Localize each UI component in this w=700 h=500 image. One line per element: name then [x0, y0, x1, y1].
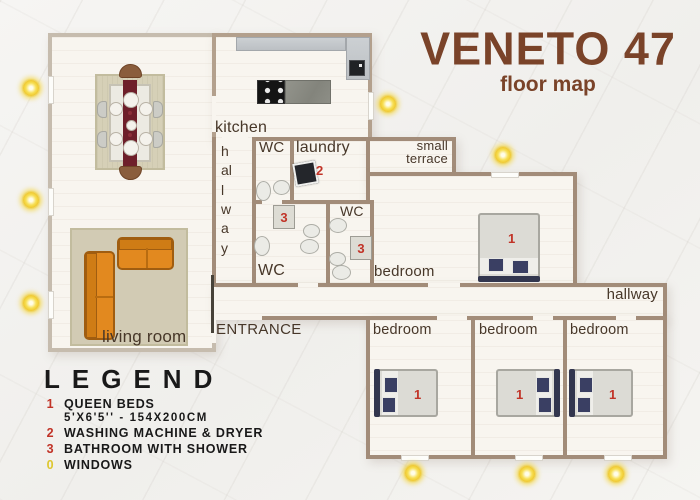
label-bedroom-2: bedroom	[479, 322, 538, 338]
chair-icon	[97, 131, 107, 148]
chair-icon	[153, 101, 163, 118]
shower-marker: 3	[273, 205, 295, 229]
bed-frame	[554, 369, 560, 417]
bed-frame	[374, 369, 380, 417]
legend-num-3: 3	[44, 442, 57, 456]
toilet-icon	[329, 252, 346, 266]
pillow-icon	[536, 377, 550, 393]
queen-bed-icon: 1	[569, 369, 633, 417]
label-terrace-line2: terrace	[378, 152, 448, 166]
window-slot-bedroom-3	[604, 455, 632, 461]
sofa-seam	[95, 296, 113, 298]
sofa-seam	[146, 248, 148, 268]
label-living-room: living room	[102, 327, 186, 347]
plate-icon	[139, 132, 153, 146]
page-subtitle: floor map	[400, 73, 696, 97]
window-slot-left-1	[48, 76, 54, 104]
legend-item-bathroom: 3 BATHROOM WITH SHOWER	[44, 442, 263, 456]
legend-label-0: WINDOWS	[64, 458, 133, 472]
window-slot-kitchen	[368, 92, 374, 120]
plate-icon	[109, 132, 123, 146]
label-entrance: ENTRANCE	[216, 321, 302, 338]
door-bathroom-left	[298, 283, 318, 287]
sink-icon	[273, 180, 290, 195]
legend-num-0: 0	[44, 458, 57, 472]
bed-marker: 1	[516, 387, 523, 402]
window-slot-left-2	[48, 188, 54, 216]
window-icon	[495, 147, 511, 163]
window-icon	[23, 80, 39, 96]
window-icon	[23, 295, 39, 311]
legend-item-windows: 0 WINDOWS	[44, 458, 263, 472]
door-bedroom-2	[533, 316, 553, 320]
window-icon	[23, 192, 39, 208]
pillow-icon	[512, 260, 529, 274]
plate-icon	[123, 140, 139, 156]
bed-marker: 1	[508, 231, 515, 246]
toilet-icon	[300, 239, 319, 254]
shower-marker: 3	[350, 236, 372, 260]
label-bedroom-1: bedroom	[373, 322, 432, 338]
title-block: VENETO 47 floor map	[400, 26, 696, 97]
label-hallway-vertical: hallway	[221, 142, 234, 258]
window-slot-left-3	[48, 291, 54, 319]
legend-label-1: QUEEN BEDS	[64, 397, 155, 411]
toilet-icon	[256, 181, 271, 201]
page-title: VENETO 47	[400, 25, 696, 72]
sofa-icon	[117, 237, 174, 270]
queen-bed-icon: 1	[374, 369, 438, 417]
door-kitchen-hallway	[222, 137, 248, 141]
runner-dot	[128, 111, 132, 115]
legend-num-1: 1	[44, 397, 57, 411]
kitchen-sink-icon	[349, 60, 365, 76]
legend-label-3: BATHROOM WITH SHOWER	[64, 442, 248, 456]
pillow-icon	[577, 397, 591, 413]
window-slot-bedroom-2	[515, 455, 543, 461]
sink-icon	[329, 218, 347, 233]
door-bedroom-1	[437, 316, 467, 320]
legend-num-2: 2	[44, 426, 57, 440]
plate-icon	[126, 120, 137, 131]
bed-marker: 1	[609, 387, 616, 402]
shower-marker-num: 3	[357, 241, 364, 256]
washer-marker: 2	[316, 163, 323, 178]
bed-frame	[569, 369, 575, 417]
sink-icon	[254, 236, 270, 256]
legend-sublabel-bed-size: 5'X6'5'' - 154X200CM	[64, 412, 263, 424]
label-laundry: laundry	[296, 139, 350, 157]
toilet-icon	[332, 265, 351, 280]
pillow-icon	[384, 377, 398, 393]
legend-item-washer: 2 WASHING MACHINE & DRYER	[44, 426, 263, 440]
pillow-icon	[488, 258, 504, 272]
bedroom-divider-2	[563, 320, 567, 455]
pillow-icon	[382, 397, 396, 413]
door-bedroom-3	[616, 316, 636, 320]
shower-marker-num: 3	[280, 210, 287, 225]
label-bedroom-middle: bedroom	[374, 263, 435, 280]
legend: LEGEND 1 QUEEN BEDS 5'X6'5'' - 154X200CM…	[44, 364, 263, 472]
pillow-icon	[579, 377, 593, 393]
label-bedroom-3: bedroom	[570, 322, 629, 338]
plate-icon	[109, 102, 123, 116]
legend-label-2: WASHING MACHINE & DRYER	[64, 426, 263, 440]
queen-bed-icon: 1	[496, 369, 560, 417]
window-slot-bedroom-1	[401, 455, 429, 461]
runner-dot	[128, 133, 132, 137]
bedroom-divider-1	[471, 320, 475, 455]
label-wc-left: WC	[258, 262, 285, 280]
door-bedroom-middle	[428, 283, 460, 287]
toilet-icon	[303, 224, 320, 238]
kitchen-counter-top	[236, 37, 346, 51]
window-slot-bedroom-middle	[491, 172, 519, 178]
plate-icon	[123, 92, 139, 108]
stove-icon	[257, 80, 285, 104]
plate-icon	[139, 102, 153, 116]
queen-bed-icon: 1	[478, 213, 540, 282]
window-icon	[405, 465, 421, 481]
label-wc-top: WC	[259, 139, 284, 156]
window-icon	[380, 96, 396, 112]
kitchen-island-counter	[285, 80, 331, 104]
washing-machine-icon	[292, 160, 319, 187]
bed-frame	[478, 276, 540, 282]
chair-icon	[97, 101, 107, 118]
floor-map-page: 2 3 3 1 1 1 1	[0, 0, 700, 500]
window-icon	[519, 466, 535, 482]
label-wc-right: WC	[340, 203, 364, 219]
entrance-door	[211, 275, 214, 333]
label-kitchen: kitchen	[215, 119, 267, 137]
bed-marker: 1	[414, 387, 421, 402]
legend-title: LEGEND	[44, 364, 263, 395]
legend-item-queen-beds: 1 QUEEN BEDS	[44, 397, 263, 411]
pillow-icon	[538, 397, 552, 413]
window-icon	[608, 466, 624, 482]
label-hallway-right: hallway	[570, 286, 658, 303]
room-hallway-vertical	[212, 137, 256, 287]
chair-icon	[153, 131, 163, 148]
